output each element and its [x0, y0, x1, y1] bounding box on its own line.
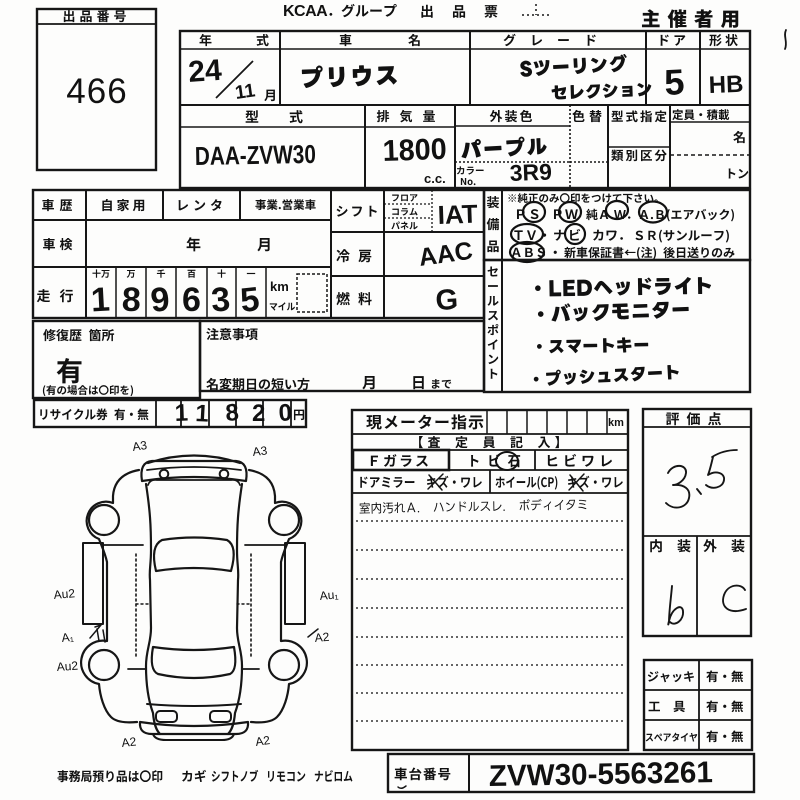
- svg-text:A2: A2: [314, 630, 330, 645]
- svg-text:Au₁: Au₁: [319, 587, 339, 603]
- svg-text:AAC: AAC: [417, 237, 475, 272]
- svg-text:0: 0: [278, 399, 293, 427]
- svg-text:11: 11: [234, 80, 257, 104]
- svg-text:2: 2: [252, 400, 265, 427]
- svg-text:A₁: A₁: [61, 630, 74, 645]
- svg-text:5: 5: [238, 280, 261, 320]
- svg-text:5: 5: [663, 61, 685, 103]
- svg-text:3R9: 3R9: [509, 159, 552, 186]
- svg-text:3: 3: [210, 280, 232, 319]
- svg-text:KCAA: KCAA: [283, 3, 328, 20]
- svg-text:8: 8: [121, 281, 141, 320]
- svg-text:24: 24: [187, 54, 223, 89]
- svg-text:G: G: [435, 284, 459, 317]
- svg-text:DAA-ZVW30: DAA-ZVW30: [195, 139, 317, 171]
- svg-text:9: 9: [149, 280, 171, 320]
- svg-text:1800: 1800: [382, 133, 447, 168]
- svg-text:1: 1: [195, 400, 210, 428]
- svg-text:1: 1: [174, 400, 188, 427]
- svg-text:km: km: [270, 279, 289, 294]
- svg-text:c.c.: c.c.: [424, 171, 446, 186]
- svg-text:A3: A3: [252, 443, 268, 458]
- svg-text:8: 8: [225, 399, 240, 427]
- svg-text:A2: A2: [254, 733, 271, 749]
- svg-text:A2: A2: [121, 734, 137, 749]
- svg-text:Au2: Au2: [56, 659, 79, 674]
- svg-text:6: 6: [182, 281, 201, 319]
- svg-text:km: km: [608, 417, 624, 429]
- svg-text:Au2: Au2: [53, 586, 76, 602]
- svg-text:1: 1: [90, 281, 111, 320]
- svg-text:A3: A3: [131, 438, 148, 454]
- svg-text:IAT: IAT: [437, 199, 478, 230]
- svg-text:466: 466: [66, 72, 127, 111]
- svg-text:HB: HB: [708, 71, 744, 99]
- svg-text:ZVW30-5563261: ZVW30-5563261: [489, 756, 714, 793]
